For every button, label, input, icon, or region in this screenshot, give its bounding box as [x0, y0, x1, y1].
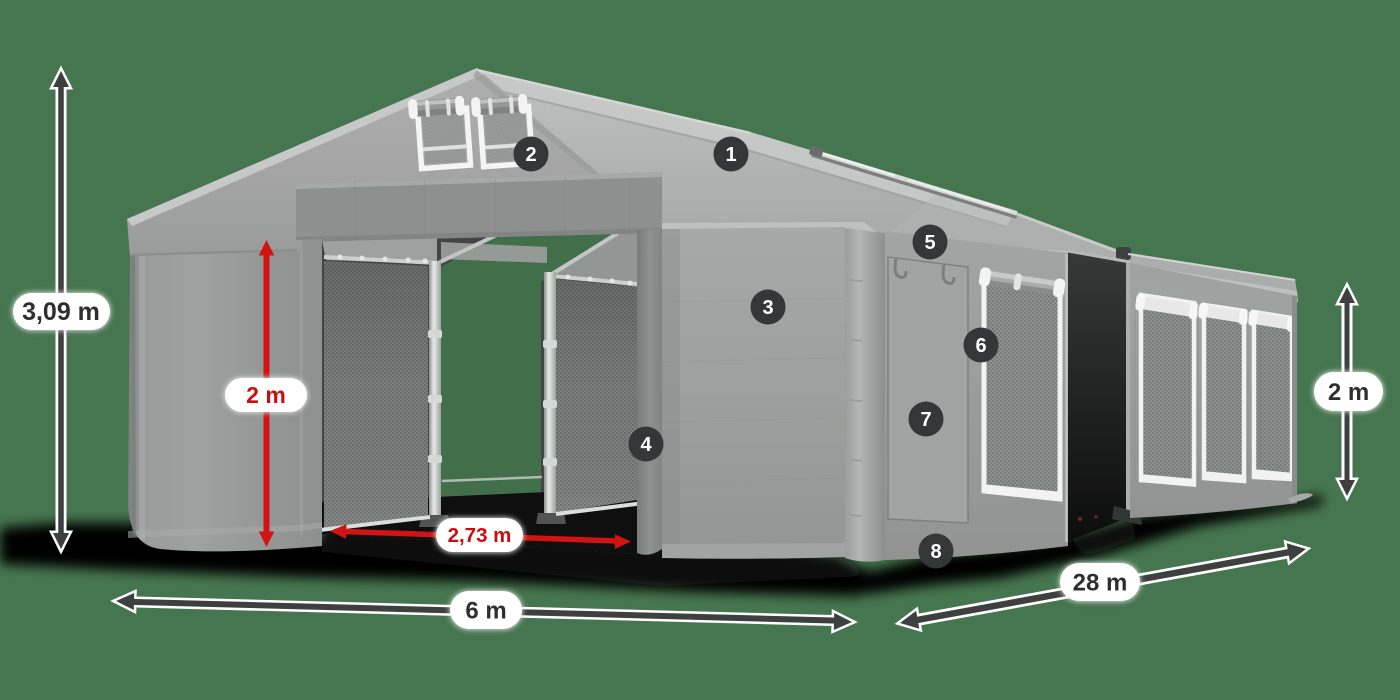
svg-text:4: 4	[640, 434, 652, 456]
svg-text:3,09 m: 3,09 m	[22, 298, 100, 326]
svg-text:6: 6	[975, 335, 986, 357]
svg-text:2 m: 2 m	[1328, 379, 1369, 406]
svg-text:2 m: 2 m	[246, 382, 286, 408]
svg-text:7: 7	[920, 409, 931, 431]
svg-text:1: 1	[725, 144, 736, 166]
svg-text:28 m: 28 m	[1073, 570, 1128, 597]
svg-text:8: 8	[930, 541, 941, 563]
svg-text:6 m: 6 m	[465, 598, 506, 625]
svg-text:2,73 m: 2,73 m	[448, 524, 512, 547]
svg-text:2: 2	[525, 144, 536, 166]
svg-text:5: 5	[924, 232, 935, 254]
svg-text:3: 3	[762, 297, 773, 319]
